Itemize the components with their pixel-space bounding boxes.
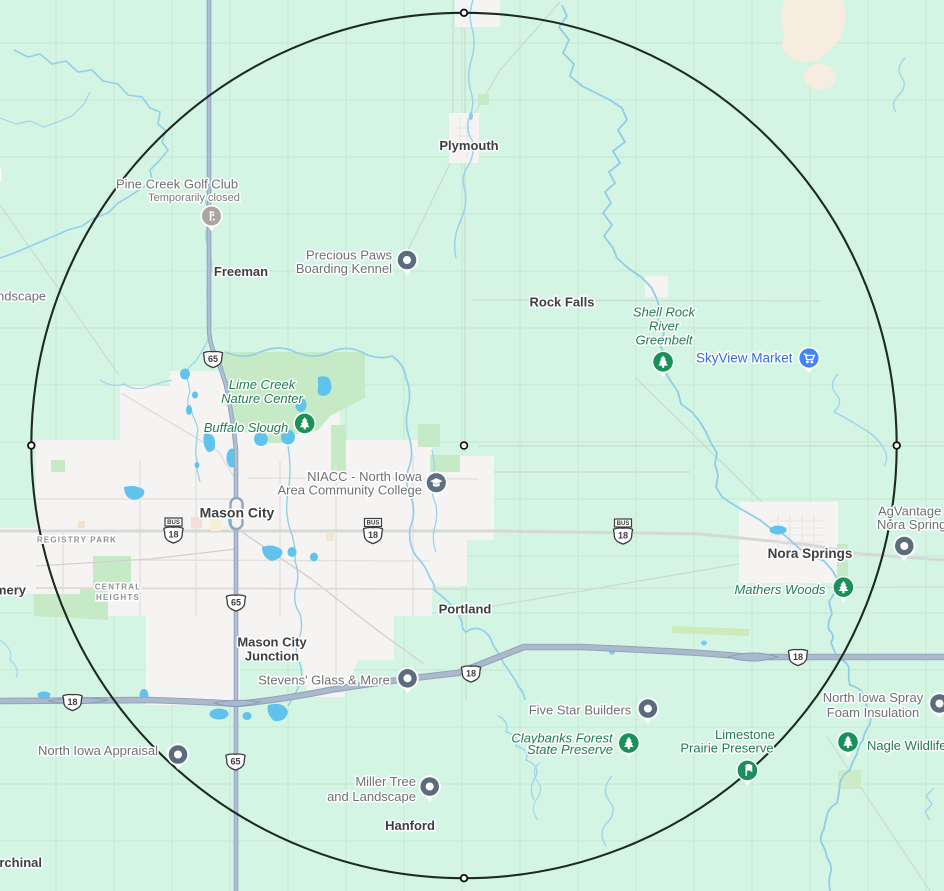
svg-text:Rock Falls: Rock Falls xyxy=(529,295,594,310)
svg-text:rchinal: rchinal xyxy=(0,855,42,870)
svg-text:State Preserve: State Preserve xyxy=(527,742,613,757)
svg-text:18: 18 xyxy=(368,530,378,540)
svg-text:Buffalo Slough: Buffalo Slough xyxy=(204,420,289,435)
svg-text:Nature Center: Nature Center xyxy=(221,391,303,406)
svg-text:18: 18 xyxy=(67,697,77,707)
svg-text:Prairie Preserve: Prairie Preserve xyxy=(680,741,773,756)
svg-text:and Landscape: and Landscape xyxy=(327,789,416,804)
svg-text:North Iowa Spray: North Iowa Spray xyxy=(823,690,924,705)
svg-text:mery: mery xyxy=(0,583,27,598)
svg-text:River: River xyxy=(649,319,680,334)
svg-text:Mason City: Mason City xyxy=(237,635,307,650)
svg-text:Five Star Builders: Five Star Builders xyxy=(529,703,632,718)
svg-text:Temporarily closed: Temporarily closed xyxy=(148,192,240,204)
svg-text:Nagle Wildlife: Nagle Wildlife xyxy=(867,738,944,753)
svg-text:65: 65 xyxy=(231,598,241,608)
svg-text:Mason City: Mason City xyxy=(200,505,275,521)
svg-text:65: 65 xyxy=(230,757,240,767)
svg-text:Stevens' Glass & More: Stevens' Glass & More xyxy=(258,673,390,688)
svg-text:BUS: BUS xyxy=(167,520,180,526)
svg-text:BUS: BUS xyxy=(617,521,630,527)
svg-text:ll: ll xyxy=(0,167,1,183)
svg-text:18: 18 xyxy=(618,531,628,541)
svg-text:Foam Insulation: Foam Insulation xyxy=(827,705,920,720)
svg-text:North Iowa Appraisal: North Iowa Appraisal xyxy=(38,743,158,758)
svg-text:Lime Creek: Lime Creek xyxy=(229,377,297,392)
svg-text:Junction: Junction xyxy=(245,649,299,664)
svg-text:Plymouth: Plymouth xyxy=(439,138,498,153)
svg-text:18: 18 xyxy=(793,652,803,662)
svg-text:Nora Springs: Nora Springs xyxy=(768,546,853,561)
svg-text:Boarding Kennel: Boarding Kennel xyxy=(296,261,392,276)
svg-text:BUS: BUS xyxy=(367,521,380,527)
svg-text:18: 18 xyxy=(168,530,178,540)
svg-text:Miller Tree: Miller Tree xyxy=(355,774,416,789)
svg-text:18: 18 xyxy=(466,669,476,679)
svg-text:SkyView Market: SkyView Market xyxy=(696,351,793,366)
svg-text:Pine Creek Golf Club: Pine Creek Golf Club xyxy=(116,177,238,192)
svg-text:CENTRAL: CENTRAL xyxy=(95,583,142,592)
svg-text:REGISTRY PARK: REGISTRY PARK xyxy=(37,536,117,545)
svg-text:Shell Rock: Shell Rock xyxy=(633,305,697,320)
svg-text:Area Community College: Area Community College xyxy=(277,483,422,498)
svg-text:HEIGHTS: HEIGHTS xyxy=(96,593,140,602)
svg-text:Freeman: Freeman xyxy=(214,264,268,279)
svg-text:Hanford: Hanford xyxy=(385,818,435,833)
svg-text:Greenbelt: Greenbelt xyxy=(635,333,693,348)
svg-text:ndscape: ndscape xyxy=(0,289,46,304)
svg-text:Mathers Woods: Mathers Woods xyxy=(734,582,826,597)
svg-text:Portland: Portland xyxy=(439,602,492,617)
svg-text:65: 65 xyxy=(208,354,218,364)
svg-text:Nora Springs: Nora Springs xyxy=(877,517,944,532)
